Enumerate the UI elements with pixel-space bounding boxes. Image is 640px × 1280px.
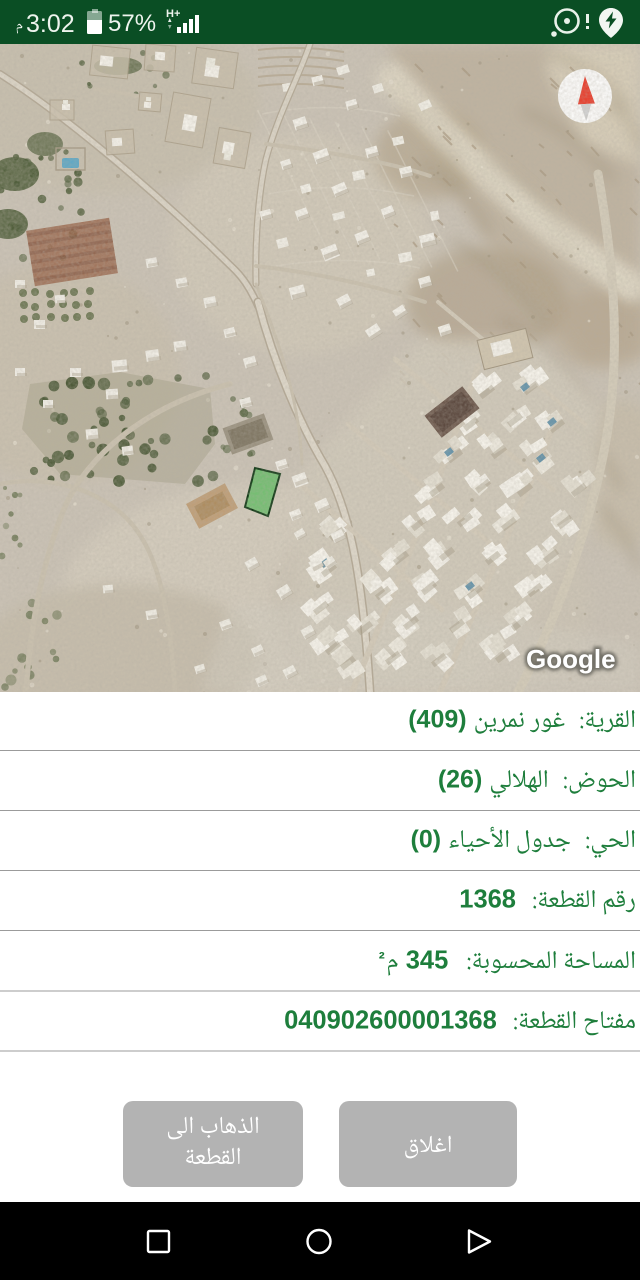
- svg-text:040902600001368: 040902600001368: [284, 1007, 497, 1035]
- svg-text:1368: 1368: [459, 886, 516, 914]
- svg-text:²: ²: [379, 949, 385, 969]
- svg-text:(409): (409): [408, 706, 466, 734]
- svg-text:(0): (0): [411, 826, 442, 854]
- svg-text:3:02: 3:02: [26, 10, 75, 38]
- svg-text:H+: H+: [166, 8, 180, 20]
- svg-text:(26): (26): [438, 766, 482, 794]
- svg-text:57%: 57%: [108, 10, 156, 37]
- svg-text:345: 345: [406, 947, 449, 975]
- svg-text:Google: Google: [526, 644, 616, 674]
